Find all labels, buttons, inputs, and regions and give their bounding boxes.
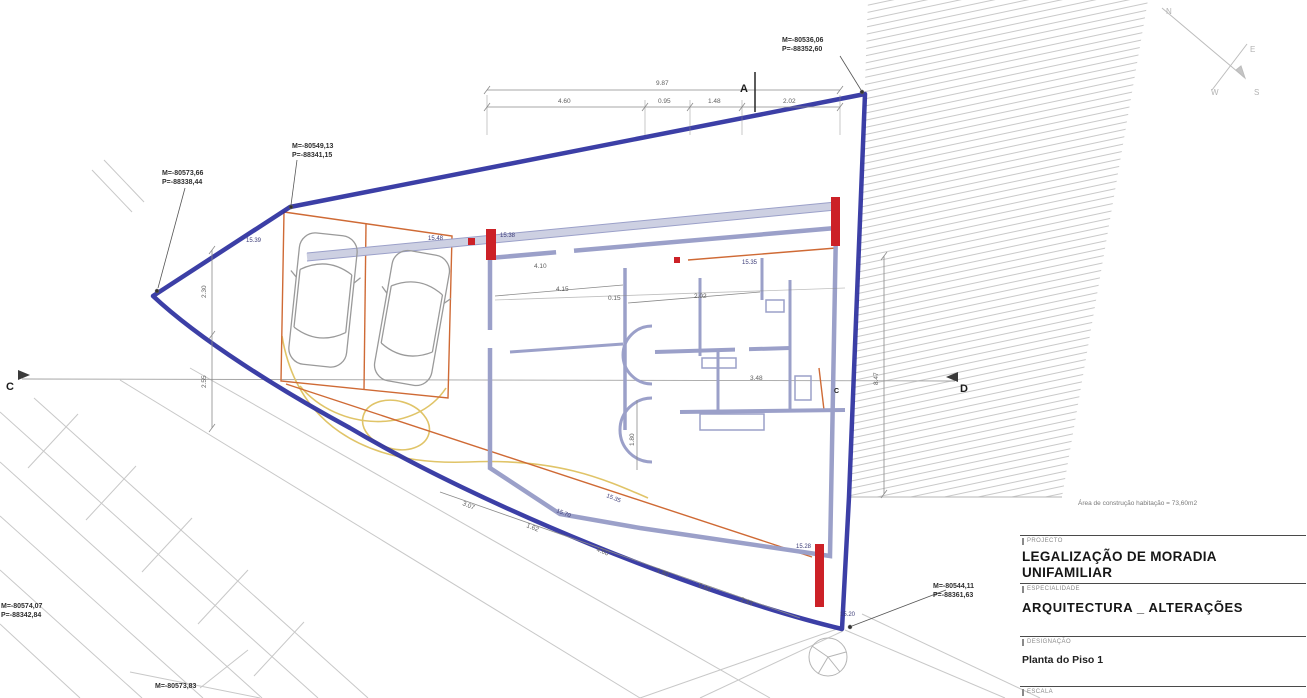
elevation-label: 15.35	[605, 493, 622, 504]
car-windshield	[391, 278, 444, 295]
elevation-label: 15.28	[796, 544, 812, 550]
dim-top-seg: 4.60	[558, 98, 571, 105]
section-marker-c-inner: C	[834, 388, 839, 395]
car-rear-window	[380, 343, 433, 360]
elevation-label: 15.48	[428, 236, 444, 242]
sink-fixture	[766, 300, 784, 312]
coord-mid-left-p: P=-88341,15	[292, 152, 332, 159]
title-block-project-section: PROJECTO LEGALIZAÇÃO DE MORADIA UNIFAMIL…	[1020, 535, 1306, 583]
dim-top-seg: 1.48	[708, 98, 721, 105]
street-line	[845, 630, 1005, 698]
new-construction-marks	[468, 197, 840, 607]
coordinate-leaders	[155, 56, 946, 629]
street-line	[120, 380, 640, 698]
project-title-line1: LEGALIZAÇÃO DE MORADIA	[1022, 549, 1306, 565]
coord-bottom-center-m: M=-80573,83	[155, 683, 197, 690]
altered-wall	[819, 368, 824, 410]
elevation-label: 15.70	[555, 508, 572, 519]
coord-top-right-p: P=-88352,60	[782, 46, 822, 53]
neighbour-hatch-area	[849, 0, 1148, 497]
coord-bottom-right-p: P=-88361,63	[933, 592, 973, 599]
partition-wall	[510, 344, 623, 352]
project-title-line2: UNIFAMILIAR	[1022, 565, 1306, 581]
car-2	[366, 247, 458, 389]
leader-line	[700, 631, 843, 698]
new-wall-mark	[486, 229, 496, 260]
road-line	[34, 398, 368, 698]
door-opening	[556, 245, 575, 257]
plot-boundary	[153, 94, 865, 629]
coord-bottom-left-p: P=-88342,84	[1, 612, 41, 619]
project-label: PROJECTO	[1022, 538, 1306, 545]
elevation-label: 15.35	[742, 260, 758, 266]
road-edge	[104, 160, 144, 202]
dim-bottom: 4.60	[595, 546, 610, 557]
street-line	[862, 614, 1040, 698]
dim-interior: 1.80	[629, 433, 636, 446]
dim-bottom: 0.60	[697, 582, 712, 593]
partition-wall	[680, 410, 845, 412]
compass-s-label: S	[1254, 88, 1259, 97]
dim-right-side: 8.47	[873, 372, 880, 385]
coord-mid-left-m: M=-80549,13	[292, 143, 334, 150]
curved-wall	[623, 326, 652, 384]
wc-fixture	[795, 376, 811, 400]
road-joint	[254, 622, 304, 676]
door-opening	[486, 330, 494, 348]
section-marker-a: A	[740, 83, 748, 95]
specialty-value: ARQUITECTURA _ ALTERAÇÕES	[1022, 600, 1306, 615]
house-walls	[490, 228, 845, 556]
title-block-drawing-section: DESIGNAÇÃO Planta do Piso 1	[1020, 636, 1306, 686]
dim-line-interior	[495, 288, 845, 300]
drawing-label: DESIGNAÇÃO	[1022, 639, 1306, 646]
drawing-value: Planta do Piso 1	[1022, 654, 1306, 666]
title-block: PROJECTO LEGALIZAÇÃO DE MORADIA UNIFAMIL…	[1020, 535, 1306, 698]
dim-top-seg: 0.95	[658, 98, 671, 105]
road-line	[0, 462, 262, 698]
dim-interior: 0.15	[608, 295, 621, 302]
road-line	[0, 570, 142, 698]
new-wall-mark	[468, 238, 475, 245]
dim-bottom: 1.40	[655, 567, 670, 578]
section-marker-c: C	[6, 381, 14, 393]
new-wall-mark	[831, 197, 840, 246]
coord-bottom-left-m: M=-80574,07	[1, 603, 43, 610]
dim-left: 2.55	[201, 375, 208, 388]
compass-e-label: E	[1250, 45, 1255, 54]
elevation-label: 15.20	[840, 612, 856, 618]
utility-circle	[809, 638, 847, 676]
car-body	[372, 248, 452, 388]
dim-interior: 4.15	[556, 286, 569, 293]
north-compass	[1162, 8, 1247, 90]
road-joint	[142, 518, 192, 572]
dim-interior: 2.02	[694, 293, 707, 300]
elevation-label: 15.39	[246, 238, 262, 244]
door-opening	[735, 344, 749, 354]
compass-n-label: N	[1166, 7, 1172, 16]
coord-far-left-m: M=-80573,66	[162, 170, 204, 177]
bathtub-fixture	[700, 414, 764, 430]
section-marker-d: D	[960, 383, 968, 395]
dimension-lines	[209, 86, 887, 618]
dim-left: 2.30	[201, 285, 208, 298]
road-line	[0, 412, 318, 698]
dim-top-seg: 2.02	[783, 98, 796, 105]
turning-curves	[282, 336, 648, 498]
elevation-label: 15.38	[500, 233, 516, 239]
new-wall-mark	[674, 257, 680, 263]
road-line	[0, 624, 80, 698]
title-block-scale-section: ESCALA	[1020, 686, 1306, 698]
title-block-specialty-section: ESPECIALIDADE ARQUITECTURA _ ALTERAÇÕES	[1020, 583, 1306, 636]
partition-wall	[655, 348, 790, 352]
dim-interior: 4.10	[534, 263, 547, 270]
dim-interior: 3.48	[750, 375, 763, 382]
coord-top-right-m: M=-80536,06	[782, 37, 824, 44]
coord-bottom-right-m: M=-80544,11	[933, 583, 974, 590]
compass-ns-axis	[1162, 8, 1245, 78]
dim-bottom: 2.43	[739, 596, 754, 607]
architectural-plan-sheet: N E W S M=-80536,06 P=-88352,60 M=-80549…	[0, 0, 1307, 698]
area-note: Área de construção habitação = 73,60m2	[1078, 500, 1197, 507]
compass-w-label: W	[1211, 88, 1219, 97]
car-windshield	[300, 261, 353, 274]
dim-top-total: 9.87	[656, 80, 669, 87]
exterior-wall	[490, 228, 836, 556]
coord-far-left-p: P=-88338,44	[162, 179, 202, 186]
scale-label: ESCALA	[1022, 689, 1306, 696]
leader-line	[200, 650, 248, 688]
new-wall-mark	[815, 544, 824, 607]
car-rear-window	[293, 327, 346, 340]
dim-bottom: 3.07	[461, 500, 476, 511]
turning-curve	[282, 336, 648, 498]
specialty-label: ESPECIALIDADE	[1022, 586, 1306, 593]
road-edge	[92, 170, 132, 212]
section-arrow-c	[18, 370, 30, 380]
